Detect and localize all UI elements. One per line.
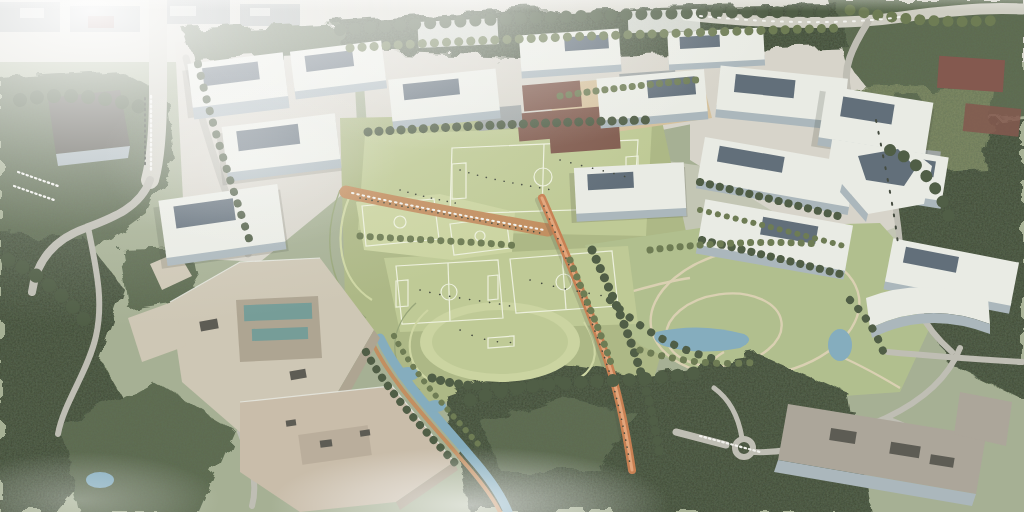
haze-overlay xyxy=(0,0,1024,512)
aerial-campus-rendering xyxy=(0,0,1024,512)
